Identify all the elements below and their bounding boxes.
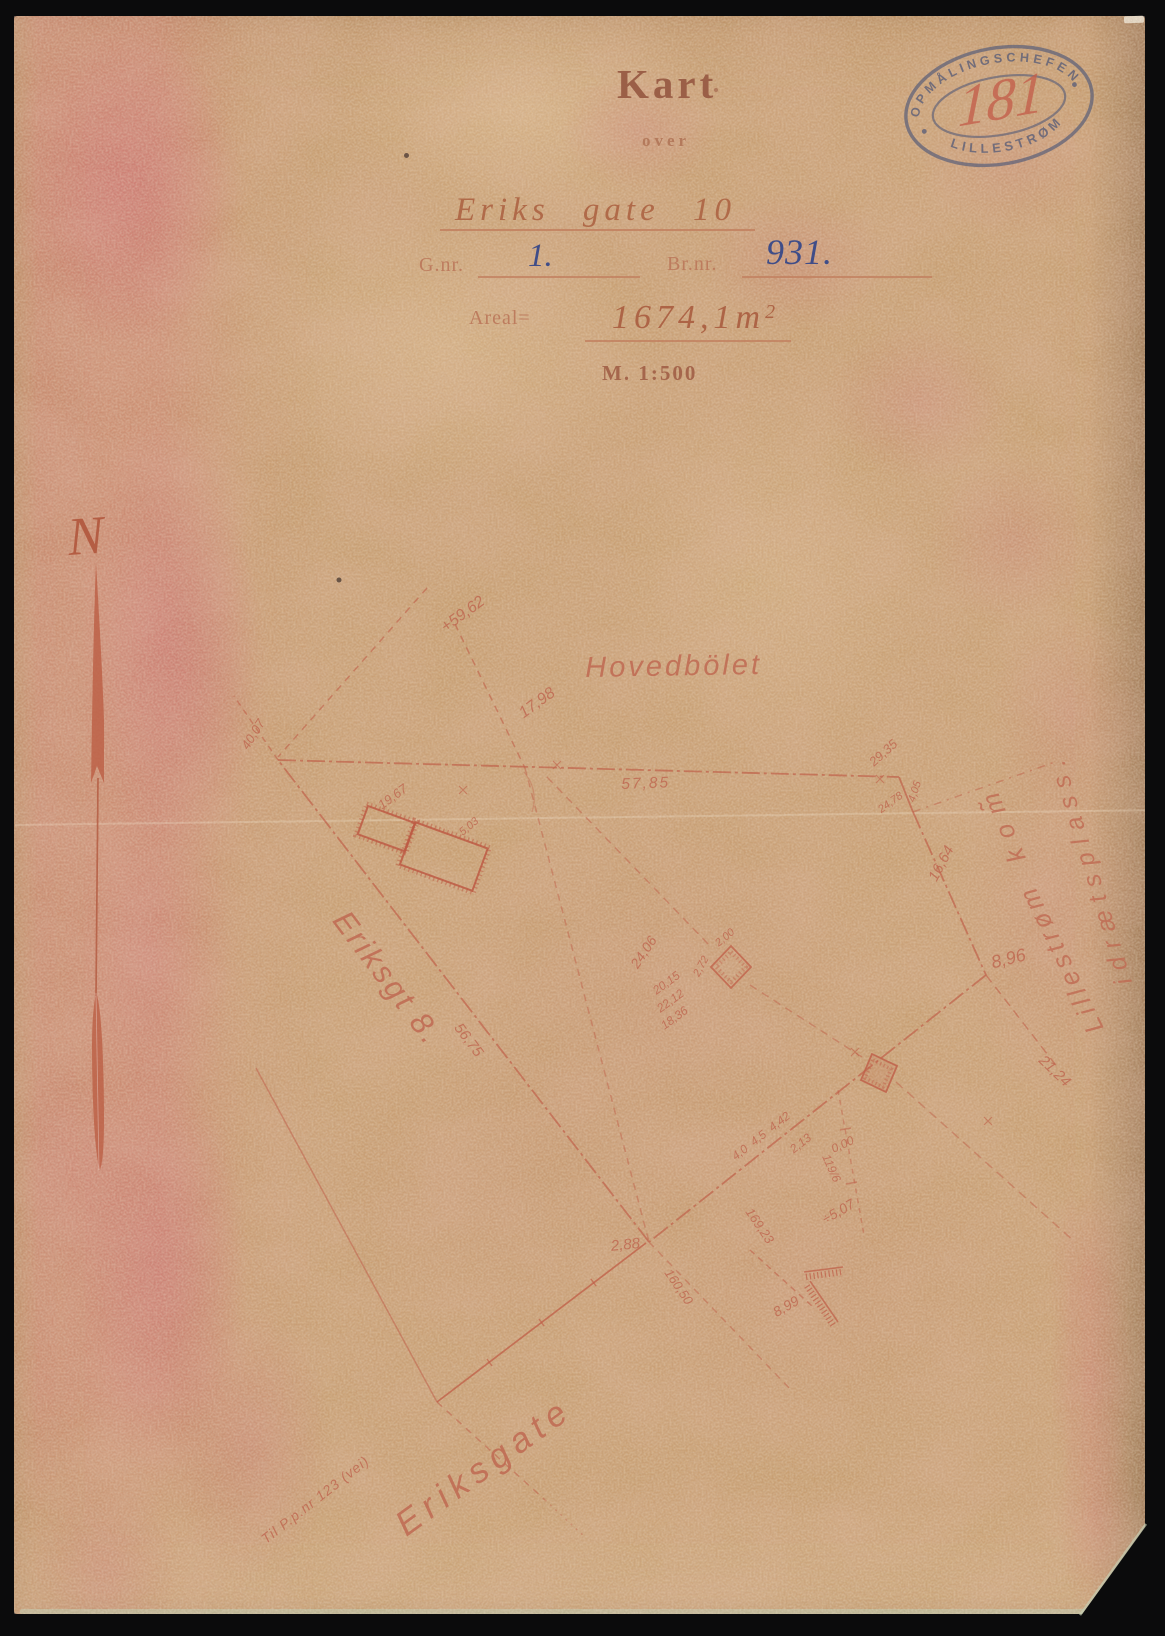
svg-text:N: N — [65, 504, 109, 567]
